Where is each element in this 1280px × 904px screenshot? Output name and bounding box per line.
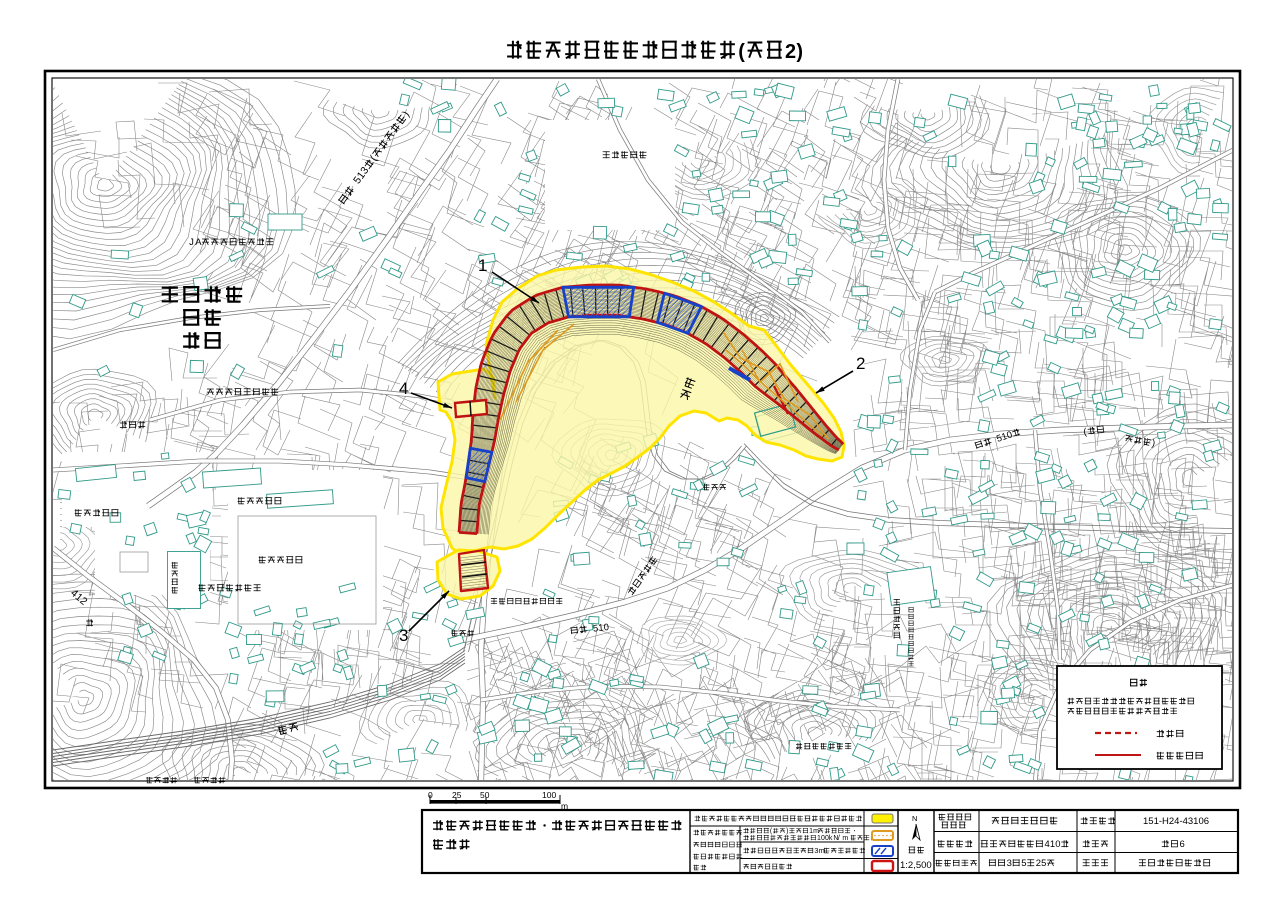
svg-text:1:2,500: 1:2,500 [900,860,932,871]
svg-text:25: 25 [452,790,462,800]
svg-text:3: 3 [399,626,408,645]
svg-text:(: ( [738,41,745,63]
svg-text:3: 3 [1007,858,1012,869]
svg-text:m: m [813,828,819,835]
svg-text:5: 5 [1041,858,1046,869]
svg-text:151-H24-43106: 151-H24-43106 [1143,816,1209,827]
svg-text:N: N [912,814,917,823]
svg-text:m: m [842,835,848,842]
svg-text:50: 50 [480,790,490,800]
svg-text:): ) [796,41,803,63]
svg-text:6: 6 [1179,839,1184,850]
svg-text:100: 100 [542,790,556,800]
svg-text:2: 2 [785,41,796,63]
svg-text:1: 1 [478,256,487,275]
svg-text:): ) [786,828,788,835]
svg-text:m: m [819,846,825,855]
svg-text:2: 2 [856,354,865,373]
svg-text:5: 5 [1021,858,1026,869]
svg-text:J: J [189,237,194,248]
svg-text:k: k [829,835,833,842]
svg-text:A: A [195,237,202,248]
svg-text:0: 0 [1055,839,1060,850]
svg-text:4: 4 [399,379,408,398]
svg-text:/: / [838,835,840,842]
